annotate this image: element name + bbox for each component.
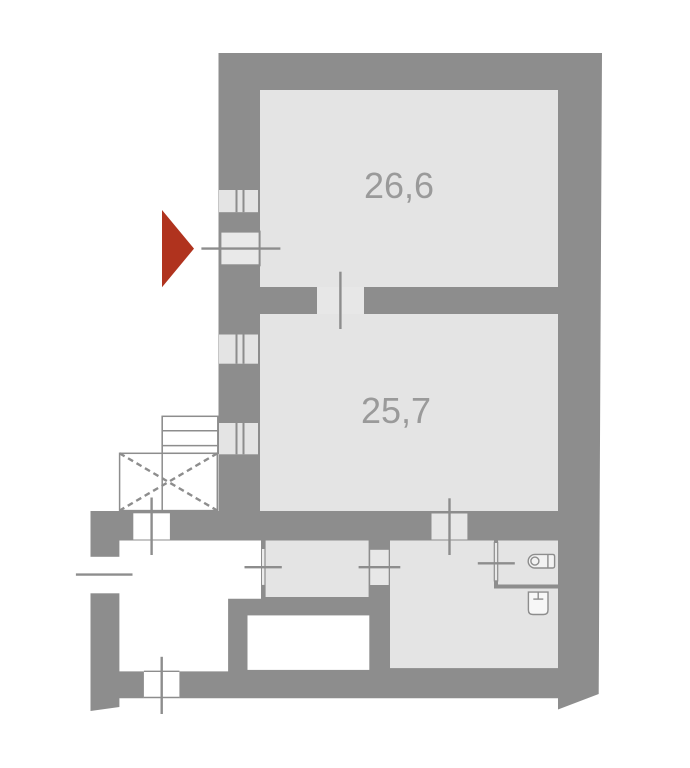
- svg-text:26,6: 26,6: [364, 165, 434, 206]
- svg-text:25,7: 25,7: [361, 390, 431, 431]
